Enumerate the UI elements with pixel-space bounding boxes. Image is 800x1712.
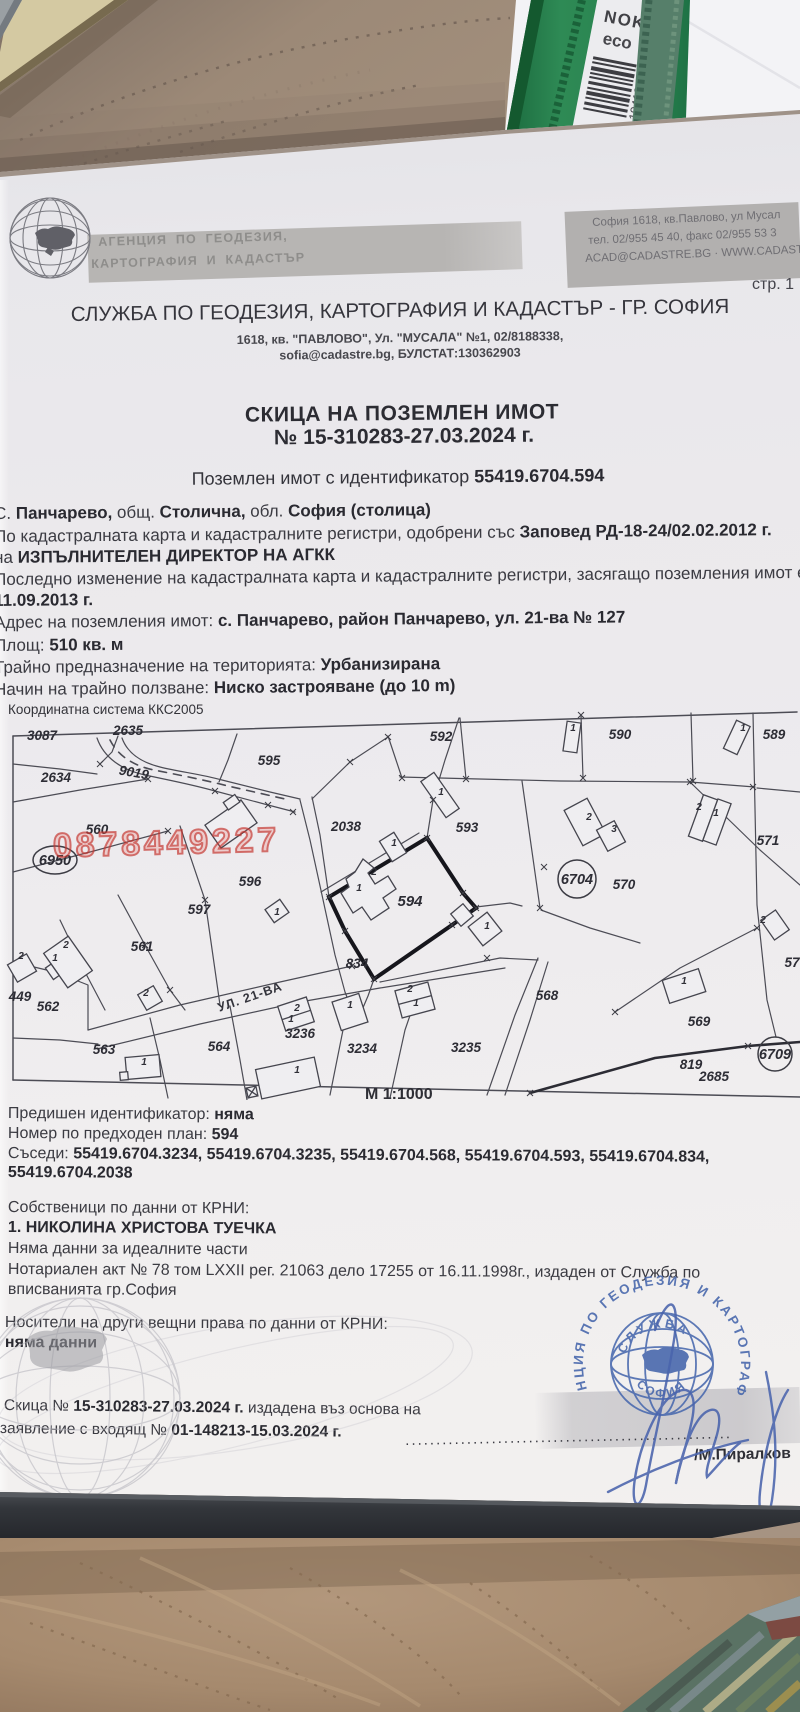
svg-text:564: 564: [208, 1039, 231, 1054]
svg-text:592: 592: [430, 729, 453, 744]
svg-text:2: 2: [585, 812, 592, 823]
svg-text:834: 834: [346, 956, 369, 971]
svg-text:594: 594: [397, 893, 423, 910]
svg-text:568: 568: [536, 988, 559, 1003]
svg-text:УЛ. 21-ВА: УЛ. 21-ВА: [216, 979, 284, 1014]
svg-text:3236: 3236: [285, 1026, 316, 1041]
svg-text:449: 449: [8, 989, 32, 1004]
svg-text:1: 1: [274, 907, 280, 918]
svg-text:1: 1: [713, 808, 719, 819]
svg-text:1: 1: [391, 838, 397, 849]
svg-text:2: 2: [370, 867, 377, 878]
svg-text:569: 569: [688, 1014, 711, 1029]
svg-text:3: 3: [611, 824, 617, 835]
svg-text:2685: 2685: [698, 1069, 730, 1084]
svg-text:1: 1: [356, 883, 362, 894]
svg-text:2: 2: [695, 802, 702, 813]
svg-text:2: 2: [293, 1003, 300, 1014]
svg-text:597: 597: [188, 902, 212, 917]
svg-text:1: 1: [288, 1014, 294, 1025]
svg-text:2: 2: [62, 940, 69, 951]
svg-text:563: 563: [93, 1042, 116, 1057]
svg-text:570: 570: [613, 877, 636, 892]
svg-text:1: 1: [570, 723, 576, 734]
svg-text:561: 561: [131, 939, 154, 954]
svg-text:9019: 9019: [118, 762, 151, 782]
svg-text:2: 2: [142, 988, 149, 999]
svg-text:2038: 2038: [330, 819, 362, 834]
svg-text:1: 1: [681, 976, 687, 987]
svg-text:3087: 3087: [27, 728, 59, 743]
svg-text:3235: 3235: [451, 1040, 482, 1055]
svg-text:1: 1: [484, 921, 490, 932]
svg-text:1: 1: [740, 723, 746, 734]
svg-text:2: 2: [406, 984, 413, 995]
svg-text:1: 1: [52, 953, 58, 964]
svg-text:2634: 2634: [40, 770, 72, 785]
svg-text:596: 596: [239, 874, 262, 889]
svg-text:589: 589: [763, 727, 786, 742]
svg-text:1: 1: [141, 1057, 147, 1068]
svg-text:1: 1: [413, 998, 419, 1009]
svg-text:590: 590: [609, 727, 632, 742]
svg-text:1: 1: [294, 1065, 300, 1076]
svg-text:1: 1: [438, 787, 444, 798]
svg-text:595: 595: [258, 753, 281, 768]
svg-text:3234: 3234: [347, 1041, 378, 1056]
svg-text:2: 2: [17, 951, 24, 962]
svg-text:2: 2: [759, 915, 766, 926]
svg-text:6704: 6704: [561, 872, 593, 888]
svg-text:57: 57: [784, 955, 800, 970]
svg-text:571: 571: [757, 833, 780, 848]
svg-text:593: 593: [456, 820, 479, 835]
svg-text:1: 1: [347, 1000, 353, 1011]
svg-text:6709: 6709: [759, 1047, 791, 1063]
svg-text:562: 562: [37, 999, 60, 1014]
svg-text:2635: 2635: [112, 723, 144, 738]
